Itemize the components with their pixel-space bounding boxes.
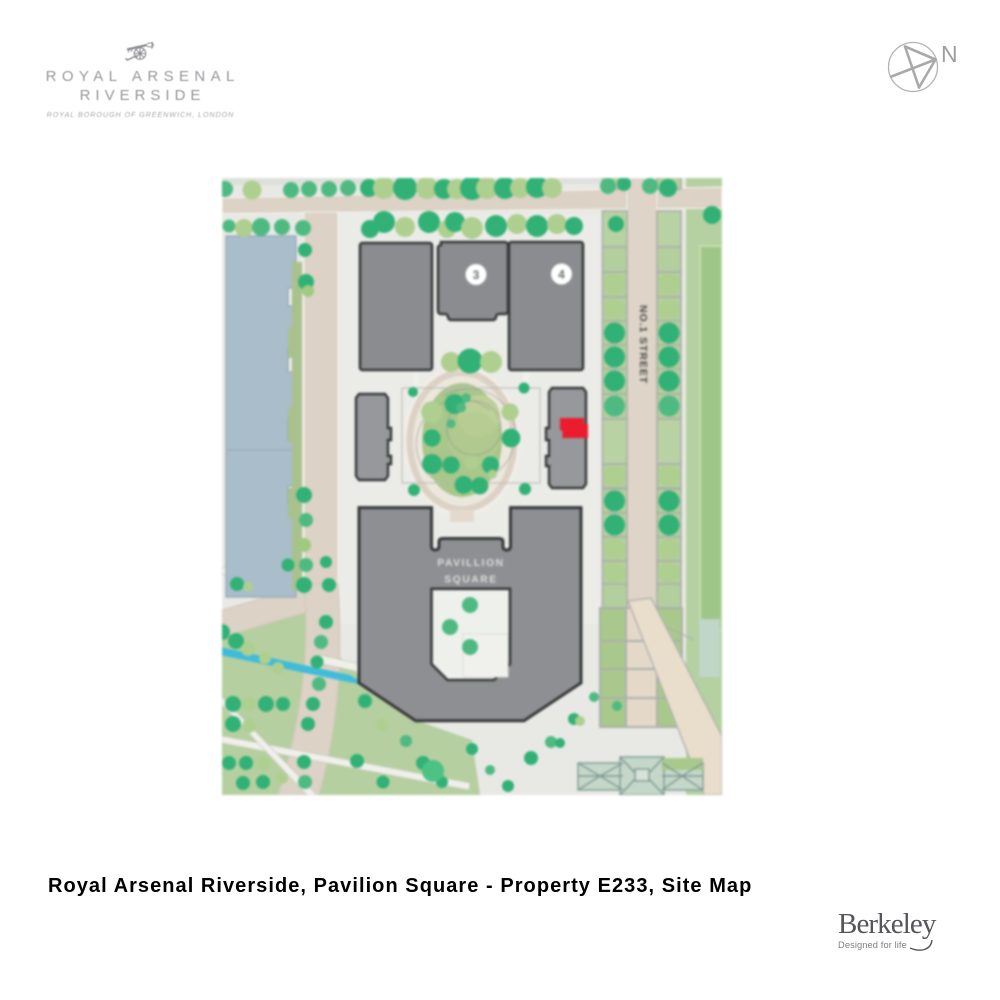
svg-text:4: 4 [558,268,565,282]
svg-text:SQUARE: SQUARE [444,575,497,586]
svg-text:3: 3 [473,268,480,282]
svg-text:NO.1 STREET: NO.1 STREET [637,305,648,384]
svg-text:N: N [941,41,958,67]
svg-text:PAVILLION: PAVILLION [437,558,504,569]
